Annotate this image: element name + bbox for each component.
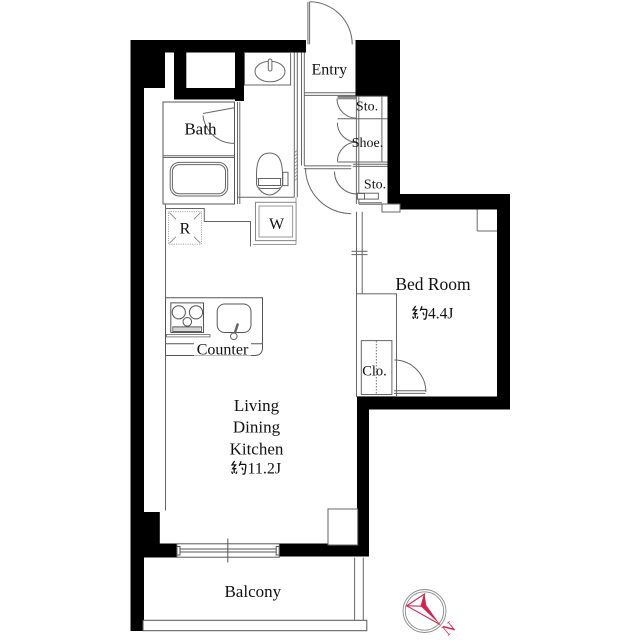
svg-text:Living: Living bbox=[234, 396, 280, 415]
svg-text:Bed Room: Bed Room bbox=[395, 274, 471, 294]
svg-text:Entry: Entry bbox=[312, 62, 348, 79]
svg-text:Bath: Bath bbox=[184, 120, 217, 139]
svg-text:4.4J: 4.4J bbox=[428, 305, 453, 322]
svg-text:Balcony: Balcony bbox=[224, 582, 281, 601]
svg-text:Shoe.: Shoe. bbox=[352, 136, 384, 151]
svg-text:Kitchen: Kitchen bbox=[230, 440, 284, 459]
svg-text:Sto.: Sto. bbox=[364, 177, 386, 192]
svg-text:Dining: Dining bbox=[233, 417, 281, 436]
svg-text:R: R bbox=[180, 221, 191, 238]
svg-text:Counter: Counter bbox=[197, 341, 249, 358]
svg-text:11.2J: 11.2J bbox=[248, 461, 282, 478]
svg-text:Clo.: Clo. bbox=[362, 364, 387, 380]
svg-text:W: W bbox=[269, 216, 285, 233]
svg-text:Sto.: Sto. bbox=[356, 99, 378, 114]
